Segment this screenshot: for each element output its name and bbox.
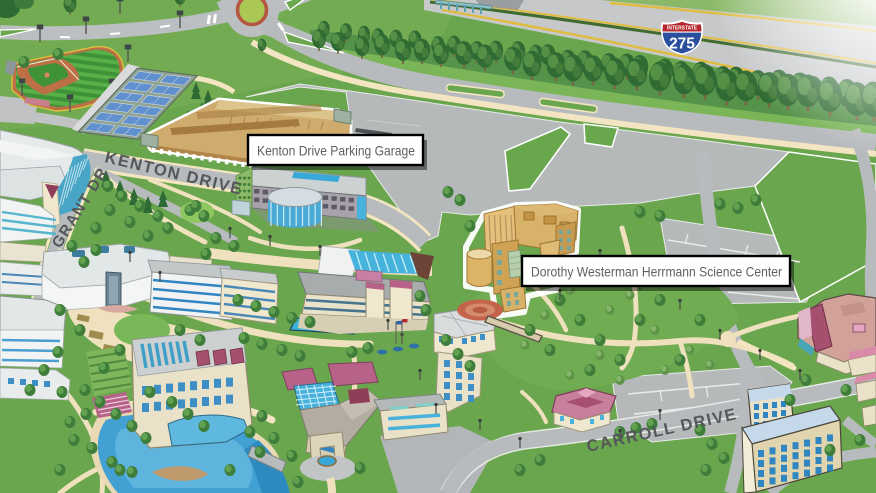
svg-text:Kenton Drive Parking Garage: Kenton Drive Parking Garage <box>257 144 415 159</box>
svg-text:INTERSTATE: INTERSTATE <box>667 26 697 32</box>
svg-text:275: 275 <box>669 36 695 53</box>
svg-text:Dorothy Westerman Herrmann Sci: Dorothy Westerman Herrmann Science Cente… <box>531 265 782 280</box>
